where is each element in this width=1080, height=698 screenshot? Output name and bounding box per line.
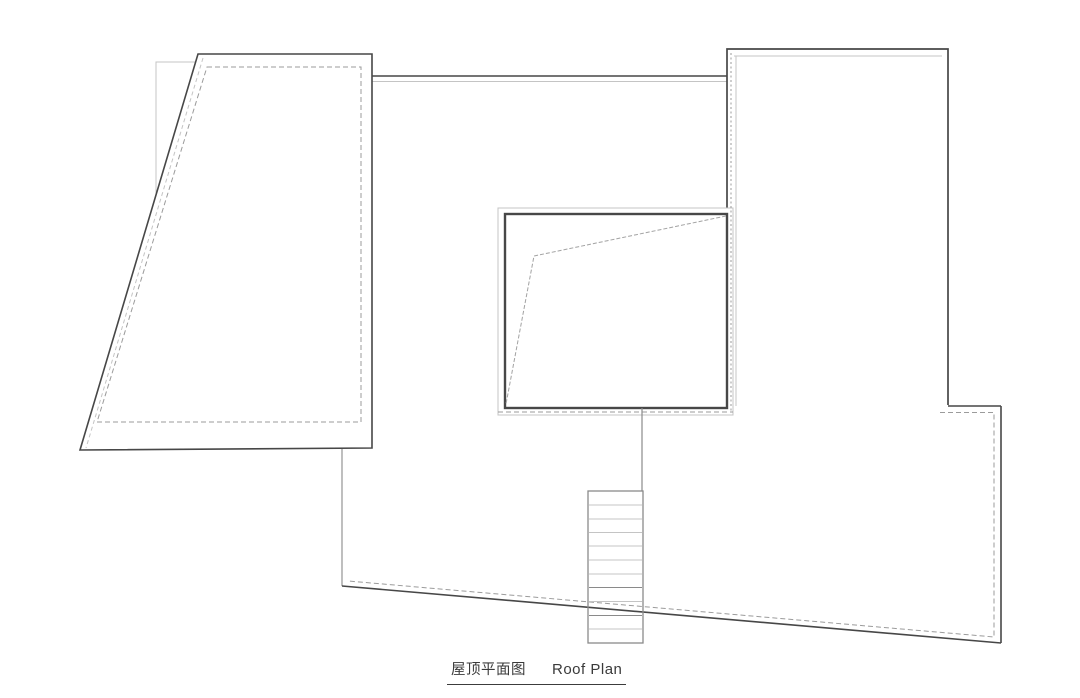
upper-right-roof-fill bbox=[727, 49, 948, 406]
drawing-title-english: Roof Plan bbox=[552, 661, 622, 678]
drawing-title-chinese: 屋顶平面图 bbox=[451, 662, 526, 678]
roof-plan-svg bbox=[0, 0, 1080, 693]
drawing-title: 屋顶平面图Roof Plan bbox=[447, 658, 626, 685]
trapezoid-roof-panel bbox=[80, 54, 372, 450]
skylight-outer-rect bbox=[498, 208, 733, 415]
roof-plan-drawing bbox=[0, 0, 1080, 693]
